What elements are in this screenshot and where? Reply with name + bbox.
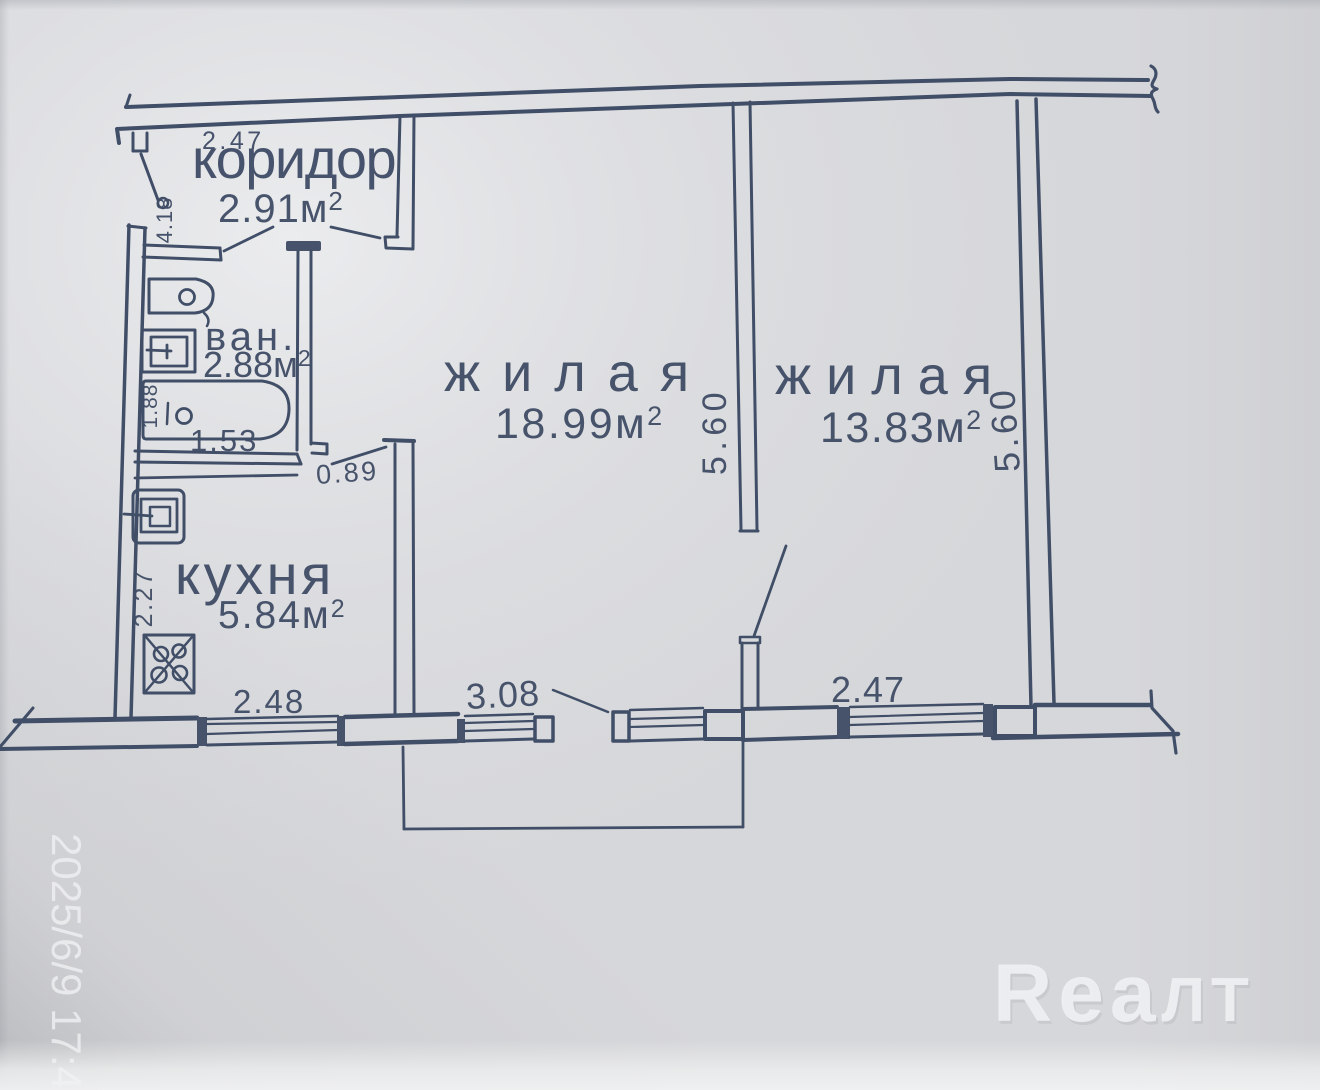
svg-text:жилая: жилая	[444, 343, 711, 403]
svg-text:2025/6/9 17:4: 2025/6/9 17:4	[43, 833, 90, 1090]
svg-text:13.83м2: 13.83м2	[820, 404, 983, 452]
svg-text:2.27: 2.27	[130, 569, 158, 628]
svg-text:2.47: 2.47	[202, 127, 265, 155]
svg-text:4.18: 4.18	[152, 197, 177, 244]
svg-text:3.08: 3.08	[465, 672, 541, 717]
svg-text:1.88: 1.88	[139, 384, 162, 429]
svg-text:5.84м2: 5.84м2	[218, 594, 347, 637]
svg-text:18.99м2: 18.99м2	[495, 400, 665, 448]
svg-text:5.60: 5.60	[696, 387, 734, 475]
svg-text:2.47: 2.47	[831, 669, 905, 710]
svg-text:0.89: 0.89	[315, 456, 380, 490]
svg-text:5.60: 5.60	[981, 385, 1028, 474]
svg-text:2.88м2: 2.88м2	[203, 344, 311, 385]
svg-text:2.48: 2.48	[233, 683, 305, 720]
svg-text:жилая: жилая	[775, 346, 1007, 406]
svg-text:2.91м2: 2.91м2	[218, 186, 344, 231]
